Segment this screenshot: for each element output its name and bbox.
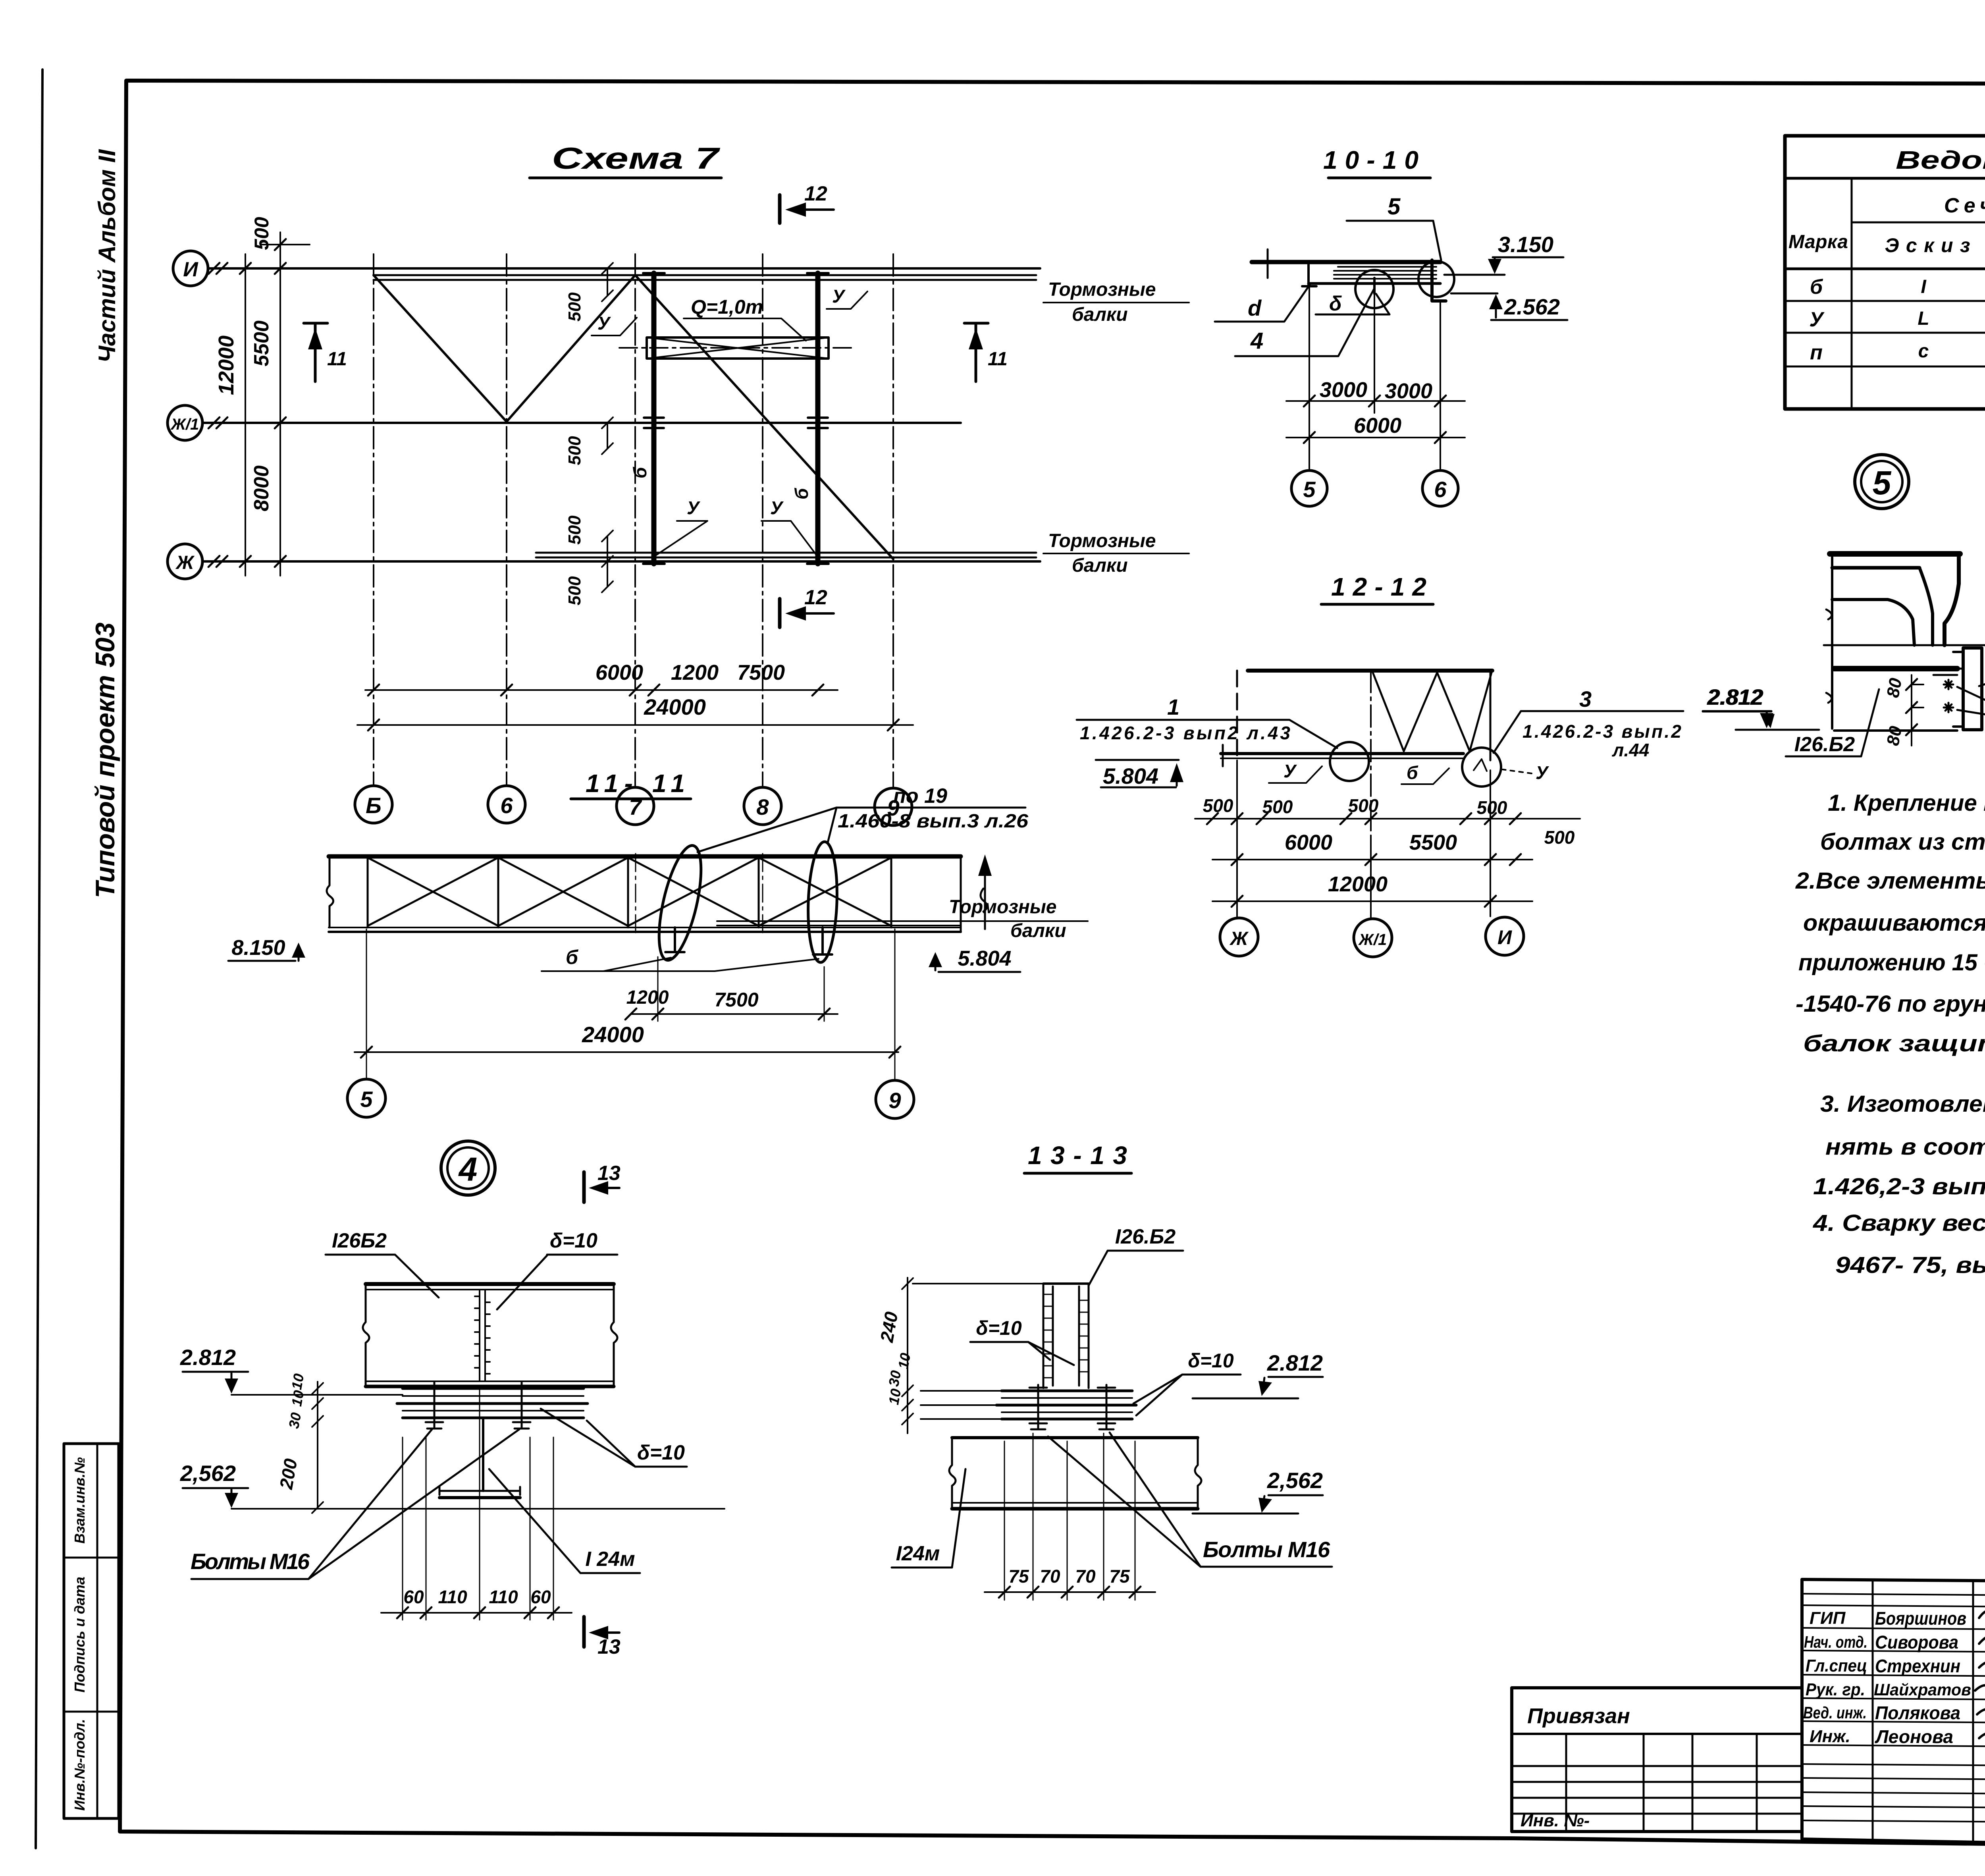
svg-text:И: И	[183, 258, 198, 281]
svg-text:Бояршинов: Бояршинов	[1875, 1608, 1966, 1629]
svg-text:Инв.№-подл.: Инв.№-подл.	[71, 1719, 88, 1810]
svg-text:12: 12	[804, 586, 827, 609]
svg-text:I 24м: I 24м	[585, 1548, 635, 1571]
svg-text:7500: 7500	[737, 661, 785, 684]
svg-text:6000: 6000	[1285, 831, 1332, 854]
svg-text:Стрехнин: Стрехнин	[1875, 1656, 1960, 1676]
svg-text:I26Б2: I26Б2	[332, 1229, 387, 1252]
svg-text:500: 500	[565, 576, 584, 605]
svg-text:5500: 5500	[250, 320, 273, 366]
svg-text:У: У	[832, 286, 846, 307]
svg-text:5: 5	[360, 1087, 373, 1112]
svg-text:б: б	[566, 946, 579, 968]
svg-text:Тормозные: Тормозные	[1048, 530, 1156, 551]
svg-text:Привязан: Привязан	[1527, 1704, 1630, 1728]
svg-text:Типовой проект 503: Типовой проект 503	[90, 623, 120, 898]
svg-text:500: 500	[565, 436, 584, 465]
svg-text:7500: 7500	[714, 989, 758, 1011]
svg-text:6: 6	[500, 793, 513, 818]
svg-text:Взам.инв.№: Взам.инв.№	[71, 1457, 88, 1544]
svg-text:13: 13	[597, 1635, 621, 1658]
svg-text:балки: балки	[1010, 920, 1066, 941]
svg-text:б: б	[1810, 276, 1823, 299]
svg-text:Тормозные: Тормозные	[1048, 279, 1156, 300]
svg-text:Ж/1: Ж/1	[1358, 931, 1387, 949]
svg-text:24000: 24000	[582, 1022, 644, 1047]
svg-text:70: 70	[1075, 1566, 1096, 1587]
svg-text:70: 70	[1040, 1566, 1060, 1587]
svg-text:75: 75	[1109, 1566, 1130, 1587]
svg-text:балки: балки	[1072, 304, 1128, 325]
svg-text:d: d	[1248, 295, 1262, 320]
svg-text:Вед. инж.: Вед. инж.	[1803, 1703, 1867, 1722]
svg-text:L: L	[1918, 308, 1929, 329]
svg-text:9: 9	[888, 1088, 901, 1113]
svg-text:Схема 7: Схема 7	[552, 142, 721, 175]
svg-text:Инв. №-: Инв. №-	[1521, 1811, 1590, 1830]
svg-text:60: 60	[530, 1587, 551, 1607]
svg-text:Подпись и дата: Подпись и дата	[71, 1577, 88, 1693]
svg-text:Марка: Марка	[1788, 231, 1848, 253]
svg-text:12000: 12000	[1328, 872, 1388, 896]
svg-text:I: I	[1921, 276, 1927, 297]
svg-text:Полякова: Полякова	[1875, 1702, 1960, 1723]
svg-text:5.804: 5.804	[958, 947, 1011, 970]
svg-text:-1540-76 по грунтовкам 1 гр: -1540-76 по грунтовкам 1 группы. На ездо…	[1796, 991, 1985, 1017]
svg-text:I24м: I24м	[896, 1542, 940, 1565]
svg-text:110: 110	[438, 1587, 467, 1607]
svg-text:5: 5	[1388, 194, 1401, 220]
svg-text:80: 80	[1883, 677, 1906, 699]
svg-text:Леонова: Леонова	[1875, 1726, 1953, 1747]
svg-text:У: У	[687, 497, 701, 518]
svg-text:л.44: л.44	[1612, 740, 1650, 760]
svg-text:У: У	[597, 313, 611, 334]
svg-text:1200: 1200	[671, 661, 719, 684]
svg-text:2,562: 2,562	[180, 1461, 236, 1486]
svg-text:б: б	[791, 488, 812, 499]
svg-text:12: 12	[804, 182, 827, 205]
svg-text:I26.Б2: I26.Б2	[1115, 1225, 1176, 1248]
svg-text:Ж: Ж	[175, 552, 195, 573]
svg-text:1200: 1200	[626, 987, 669, 1008]
svg-text:У: У	[1284, 761, 1297, 781]
svg-text:Частий Альбом II: Частий Альбом II	[94, 149, 120, 362]
svg-text:Болты М16: Болты М16	[191, 1549, 310, 1574]
svg-text:Эскиз: Эскиз	[1885, 234, 1970, 256]
svg-text:б: б	[630, 467, 650, 478]
svg-text:окрашиваются масляными эмаля: окрашиваются масляными эмалями 1 группы …	[1803, 910, 1985, 936]
svg-text:1: 1	[1167, 694, 1179, 719]
svg-text:13-13: 13-13	[1028, 1141, 1127, 1170]
svg-text:п: п	[1810, 341, 1823, 364]
svg-text:δ=10: δ=10	[550, 1229, 597, 1252]
svg-text:12000: 12000	[214, 335, 238, 395]
svg-text:5: 5	[1873, 464, 1892, 501]
svg-text:Ведомость элементов: Ведомость элементов	[1896, 146, 1985, 174]
svg-text:Инж.: Инж.	[1810, 1727, 1850, 1746]
svg-text:1.460-8 вып.3 л.26: 1.460-8 вып.3 л.26	[838, 811, 1028, 832]
svg-text:11: 11	[988, 349, 1008, 370]
svg-text:Q=1,0т: Q=1,0т	[691, 296, 763, 318]
svg-text:500: 500	[1477, 797, 1507, 818]
svg-text:24000: 24000	[644, 694, 706, 719]
svg-text:ГИП: ГИП	[1810, 1608, 1846, 1628]
svg-text:3000: 3000	[1385, 379, 1432, 403]
svg-text:Б: Б	[366, 793, 382, 818]
svg-text:8.150: 8.150	[231, 936, 285, 960]
svg-text:3.150: 3.150	[1498, 232, 1553, 257]
svg-text:У: У	[1809, 308, 1825, 331]
svg-text:У: У	[1536, 762, 1549, 783]
svg-text:1. Крепление конструкций Вып: 1. Крепление конструкций Выполнять на Вы…	[1828, 790, 1985, 816]
svg-text:I26.Б2: I26.Б2	[1794, 733, 1855, 756]
svg-text:5.804: 5.804	[1103, 764, 1158, 789]
svg-text:3. Изготовление и монтаж по: 3. Изготовление и монтаж подвесных путей…	[1820, 1091, 1985, 1117]
svg-text:3000: 3000	[1320, 378, 1367, 402]
svg-text:Болты М16: Болты М16	[1203, 1537, 1330, 1562]
svg-text:10-10: 10-10	[1323, 146, 1418, 174]
svg-text:2.812: 2.812	[180, 1345, 236, 1370]
svg-text:4. Сварку вести электродами: 4. Сварку вести электродами типа Э-42А п…	[1813, 1210, 1985, 1236]
svg-text:4: 4	[1250, 328, 1263, 354]
svg-text:10: 10	[288, 1373, 307, 1391]
svg-text:500: 500	[565, 515, 584, 545]
svg-text:4: 4	[458, 1151, 478, 1188]
svg-text:10: 10	[885, 1388, 904, 1406]
svg-text:500: 500	[1203, 795, 1233, 816]
svg-text:6: 6	[1434, 477, 1447, 502]
svg-text:200: 200	[276, 1457, 301, 1491]
svg-text:δ=10: δ=10	[637, 1441, 685, 1464]
svg-text:60: 60	[403, 1587, 424, 1607]
svg-text:500: 500	[1544, 827, 1575, 848]
svg-text:Гл.спец: Гл.спец	[1806, 1656, 1867, 1675]
svg-text:1.426,2-3 вып. 2.: 1.426,2-3 вып. 2.	[1813, 1174, 1985, 1199]
svg-text:1.426.2-3 вып2 л.43: 1.426.2-3 вып2 л.43	[1080, 723, 1290, 743]
svg-text:5500: 5500	[1409, 831, 1457, 854]
svg-text:2.812: 2.812	[1267, 1350, 1323, 1375]
svg-text:2.Все элементы подвесного п: 2.Все элементы подвесного подвенно-транс…	[1795, 868, 1985, 894]
svg-text:6000: 6000	[1354, 414, 1401, 438]
svg-text:500: 500	[251, 217, 273, 250]
svg-text:240: 240	[876, 1310, 902, 1344]
svg-text:δ=10: δ=10	[976, 1317, 1022, 1339]
svg-text:2.812: 2.812	[1707, 684, 1763, 710]
svg-text:2,562: 2,562	[1267, 1468, 1323, 1493]
svg-text:У: У	[770, 497, 784, 518]
svg-text:по 19: по 19	[893, 785, 947, 808]
svg-text:12-12: 12-12	[1331, 573, 1426, 601]
svg-text:6000: 6000	[595, 661, 643, 684]
svg-text:500: 500	[565, 292, 584, 322]
svg-text:δ=10: δ=10	[1188, 1350, 1234, 1372]
svg-text:1.426.2-3 вып.2: 1.426.2-3 вып.2	[1522, 721, 1681, 742]
svg-text:Тормозные: Тормозные	[949, 897, 1057, 918]
svg-text:Рук. гр.: Рук. гр.	[1806, 1680, 1865, 1699]
svg-text:500: 500	[1348, 795, 1379, 816]
svg-text:нять в соответствии с треб: нять в соответствии с требованиями - сер…	[1825, 1134, 1985, 1160]
svg-text:δ: δ	[1329, 292, 1342, 315]
svg-text:И: И	[1497, 926, 1512, 949]
svg-text:Нач. отд.: Нач. отд.	[1804, 1633, 1867, 1651]
svg-text:приложению 15 СНиП 2.03.11-85: приложению 15 СНиП 2.03.11-85, эмаль мар…	[1798, 950, 1985, 976]
svg-text:11: 11	[327, 349, 347, 370]
svg-text:80: 80	[1883, 725, 1906, 747]
svg-text:c: c	[1918, 341, 1929, 362]
svg-text:8: 8	[756, 794, 769, 819]
svg-text:8000: 8000	[250, 465, 273, 511]
svg-text:10: 10	[895, 1352, 913, 1371]
svg-text:Ж/1: Ж/1	[170, 416, 199, 433]
svg-text:9467- 75, высота сварного ш: 9467- 75, высота сварного шва hшв = 6мм	[1835, 1252, 1985, 1278]
svg-text:б: б	[1407, 762, 1418, 783]
svg-text:3: 3	[1579, 686, 1592, 711]
svg-text:5: 5	[1303, 477, 1316, 502]
svg-text:балки: балки	[1072, 555, 1128, 576]
svg-text:75: 75	[1008, 1566, 1029, 1587]
svg-text:10: 10	[288, 1389, 307, 1408]
svg-text:2.562: 2.562	[1504, 294, 1560, 319]
svg-text:30: 30	[885, 1369, 904, 1388]
svg-text:Сиворова: Сиворова	[1875, 1632, 1958, 1652]
svg-text:болтах из стали 30х3нф по: болтах из стали 30х3нф по ГОСТ 10702-78*	[1820, 829, 1985, 855]
svg-text:Сечение: Сечение	[1944, 194, 1985, 217]
svg-text:Ж: Ж	[1229, 928, 1249, 949]
svg-text:балок защитный слой не: балок защитный слой не наносится.	[1803, 1031, 1985, 1057]
svg-text:30: 30	[285, 1411, 304, 1430]
svg-text:500: 500	[1262, 796, 1293, 817]
svg-text:Шайхратов: Шайхратов	[1874, 1680, 1971, 1699]
svg-text:110: 110	[489, 1587, 518, 1607]
svg-text:13: 13	[597, 1162, 621, 1185]
